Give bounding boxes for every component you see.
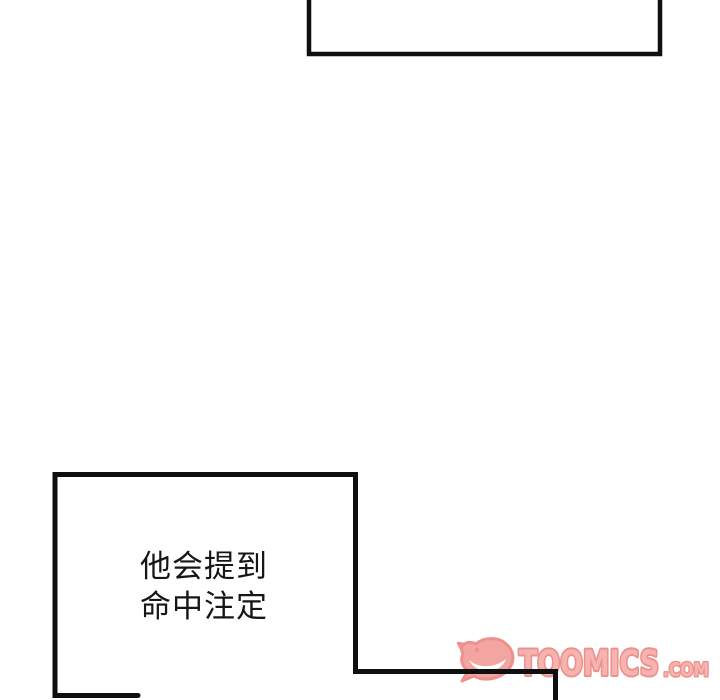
comic-page: TOOMICS .COM 他会提到 命中注定 xyxy=(0,0,720,700)
top-speech-bubble xyxy=(311,0,658,50)
dialogue-speech-bubble-text: 他会提到 命中注定 xyxy=(52,547,356,627)
dialogue-line-2: 命中注定 xyxy=(52,587,356,627)
dialogue-line-1: 他会提到 xyxy=(52,547,356,587)
